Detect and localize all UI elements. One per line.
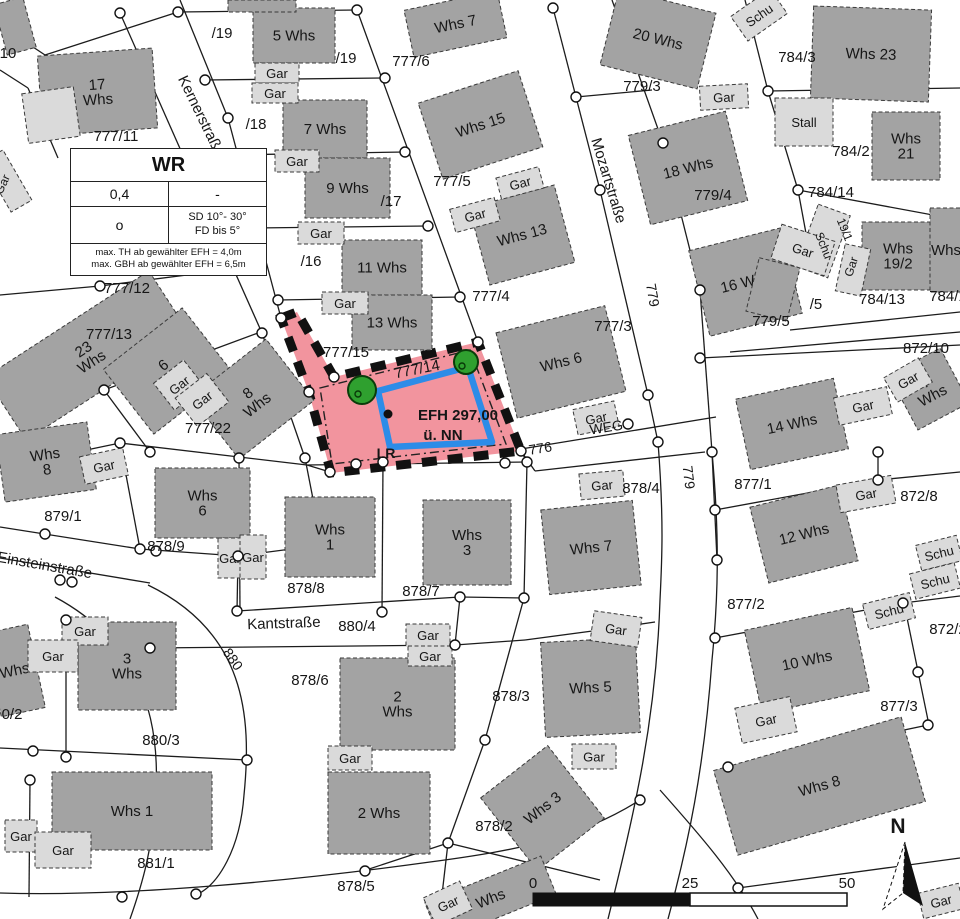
parcel-number-label: 878/5 bbox=[337, 878, 375, 895]
parcel-number-label: /16 bbox=[301, 253, 322, 270]
parcel-number-label: 777/11 bbox=[94, 128, 139, 145]
building: Whs3 bbox=[423, 500, 511, 585]
outbuilding: Gar bbox=[252, 83, 298, 103]
parcel-number-label: 779/5 bbox=[752, 313, 790, 330]
parcel-number-label: 777/4 bbox=[472, 288, 510, 305]
parcel-number-label: /18 bbox=[246, 116, 267, 133]
outbuilding: Gar bbox=[699, 84, 748, 110]
scale-bar-tick-label: 0 bbox=[529, 875, 537, 892]
survey-marker bbox=[695, 285, 705, 295]
parcel-number-label: 784/14 bbox=[808, 184, 854, 201]
survey-marker bbox=[873, 447, 883, 457]
parcel-number-label: 878/4 bbox=[622, 480, 660, 497]
outbuilding: Gar bbox=[328, 746, 372, 770]
outbuilding: Gar bbox=[275, 150, 319, 172]
legend-row-roof: o SD 10°- 30° FD bis 5° bbox=[71, 207, 266, 244]
building-footprint bbox=[228, 0, 296, 12]
scale-bar-right bbox=[690, 893, 847, 906]
street-name-label: 779 bbox=[680, 465, 699, 490]
survey-point-dot bbox=[384, 410, 393, 419]
survey-marker bbox=[40, 529, 50, 539]
legend-dash-value: - bbox=[169, 182, 266, 206]
building-label: 13 Whs bbox=[367, 315, 418, 332]
parcel-number-label: 0/2 bbox=[2, 706, 23, 723]
survey-marker bbox=[873, 475, 883, 485]
building-label: 19/2 bbox=[883, 256, 912, 273]
map-svg: 17Whs5 Whs7 Whs9 Whs11 Whs13 WhsWhs 15Wh… bbox=[0, 0, 960, 919]
building-label: Gar bbox=[419, 649, 441, 664]
survey-marker bbox=[223, 113, 233, 123]
building-label: Whs 1 bbox=[111, 803, 154, 820]
survey-marker bbox=[913, 667, 923, 677]
north-label: N bbox=[890, 815, 905, 838]
survey-marker bbox=[200, 75, 210, 85]
survey-marker bbox=[329, 372, 339, 382]
survey-marker bbox=[234, 453, 244, 463]
scale-bar-tick-label: 25 bbox=[682, 875, 699, 892]
legend-circle-value: o bbox=[71, 207, 169, 243]
survey-marker bbox=[61, 615, 71, 625]
legend-roof-line1: SD 10°- 30° bbox=[169, 211, 266, 225]
survey-marker bbox=[635, 795, 645, 805]
building-label: Whs bbox=[931, 242, 960, 259]
legend-roof-line2: FD bis 5° bbox=[169, 225, 266, 239]
survey-marker bbox=[643, 390, 653, 400]
parcel-number-label: 784/2 bbox=[832, 143, 870, 160]
outbuilding: Gar bbox=[406, 624, 450, 646]
parcel-number-label: 881/1 bbox=[137, 855, 175, 872]
legend-row-grz: 0,4 - bbox=[71, 182, 266, 207]
building-label: Gar bbox=[713, 89, 736, 105]
survey-marker bbox=[695, 353, 705, 363]
survey-marker bbox=[232, 606, 242, 616]
survey-marker bbox=[723, 762, 733, 772]
building: 2 Whs bbox=[328, 772, 430, 854]
survey-marker bbox=[733, 883, 743, 893]
parcel-number-label: /5 bbox=[810, 296, 823, 313]
legend-grz-value: 0,4 bbox=[71, 182, 169, 206]
parcel-number-label: 872/10 bbox=[903, 340, 949, 357]
scale-bar-left bbox=[533, 893, 690, 906]
building-label: Gar bbox=[310, 226, 332, 241]
parcel-number-label: 872/2 bbox=[929, 621, 960, 638]
parcel-number-label: 878/2 bbox=[475, 818, 513, 835]
building: 2Whs bbox=[340, 658, 455, 750]
survey-marker bbox=[99, 385, 109, 395]
outbuilding: Stall bbox=[775, 98, 833, 146]
building-label: 7 Whs bbox=[304, 121, 347, 138]
building-label: Gar bbox=[591, 477, 615, 494]
survey-marker bbox=[273, 295, 283, 305]
survey-marker bbox=[61, 752, 71, 762]
survey-marker bbox=[135, 544, 145, 554]
building-label: 1 bbox=[326, 537, 334, 554]
survey-marker bbox=[233, 551, 243, 561]
lr-label: LR bbox=[377, 445, 396, 461]
survey-marker bbox=[115, 438, 125, 448]
survey-marker bbox=[145, 643, 155, 653]
building-label: Gar bbox=[583, 750, 605, 765]
parcel-number-label: 878/8 bbox=[287, 580, 325, 597]
legend-box: WR 0,4 - o SD 10°- 30° FD bis 5° max. TH… bbox=[70, 148, 267, 276]
survey-marker bbox=[173, 7, 183, 17]
outbuilding: Gar bbox=[322, 292, 368, 314]
survey-marker bbox=[325, 467, 335, 477]
parcel-number-label: 777/12 bbox=[104, 280, 150, 297]
building-label: Gar bbox=[339, 751, 361, 766]
building-label: Gar bbox=[52, 843, 74, 858]
building: Whs 7 bbox=[541, 500, 641, 594]
legend-title: WR bbox=[71, 149, 266, 182]
building-label: 21 bbox=[898, 146, 915, 163]
legend-notes: max. TH ab gewählter EFH = 4,0m max. GBH… bbox=[71, 244, 266, 276]
survey-marker bbox=[423, 221, 433, 231]
survey-marker bbox=[115, 8, 125, 18]
survey-marker bbox=[480, 735, 490, 745]
survey-marker bbox=[707, 447, 717, 457]
building-label: Whs 23 bbox=[845, 45, 896, 64]
survey-marker bbox=[443, 838, 453, 848]
outbuilding: Gar bbox=[240, 535, 266, 579]
outbuilding: Gar bbox=[408, 646, 452, 666]
site-elevation-label: EFH 297,00 bbox=[418, 407, 498, 424]
parcel-number-label: /17 bbox=[381, 193, 402, 210]
parcel-number-label: /19 bbox=[212, 25, 233, 42]
outbuilding: Gar bbox=[255, 63, 299, 83]
survey-marker bbox=[191, 889, 201, 899]
building-label: 5 Whs bbox=[273, 28, 316, 45]
parcel-number-label: 779/4 bbox=[694, 187, 732, 204]
building-label: Whs bbox=[383, 704, 413, 721]
building-label: Whs bbox=[83, 90, 114, 109]
building: 7 Whs bbox=[283, 100, 367, 158]
building: Whs1 bbox=[285, 497, 375, 577]
outbuilding: Gar bbox=[28, 640, 78, 672]
parcel-number-label: 878/7 bbox=[402, 583, 440, 600]
tree-icon bbox=[348, 376, 376, 404]
parcel-number-label: 777/22 bbox=[185, 420, 231, 437]
building-label: 3 bbox=[463, 542, 471, 559]
building-label: Gar bbox=[264, 86, 286, 101]
parcel-number-label: /19 bbox=[336, 50, 357, 67]
building bbox=[228, 0, 296, 12]
building-footprint bbox=[22, 87, 80, 144]
building-label: Gar bbox=[604, 621, 628, 639]
legend-roof-cell: SD 10°- 30° FD bis 5° bbox=[169, 207, 266, 243]
survey-marker bbox=[377, 607, 387, 617]
parcel-number-label: 779/3 bbox=[623, 78, 661, 95]
outbuilding: Gar bbox=[298, 222, 344, 244]
building: 5 Whs bbox=[253, 8, 335, 63]
parcel-number-label: 880/4 bbox=[338, 618, 376, 635]
survey-marker bbox=[351, 459, 361, 469]
survey-marker bbox=[25, 775, 35, 785]
survey-marker bbox=[304, 387, 314, 397]
building: Whs19/2 bbox=[862, 222, 934, 290]
parcel-number-label: 10 bbox=[0, 45, 16, 62]
survey-marker bbox=[242, 755, 252, 765]
building-label: Gar bbox=[266, 66, 288, 81]
parcel-number-label: 880/3 bbox=[142, 732, 180, 749]
building-label: 2 Whs bbox=[358, 805, 401, 822]
parcel-number-label: 878/9 bbox=[147, 538, 185, 555]
site-elevation-unit-label: ü. NN bbox=[423, 427, 462, 444]
parcel-number-label: 777/15 bbox=[323, 344, 369, 361]
survey-marker bbox=[571, 92, 581, 102]
survey-marker bbox=[710, 633, 720, 643]
legend-note-2: max. GBH ab gewählter EFH = 6,5m bbox=[73, 259, 264, 272]
outbuilding: Gar bbox=[5, 820, 37, 852]
building: Whs6 bbox=[155, 468, 250, 538]
tree-icon bbox=[454, 350, 478, 374]
survey-marker bbox=[793, 185, 803, 195]
outbuilding: Gar bbox=[590, 611, 642, 647]
building: Whs bbox=[930, 208, 960, 292]
parcel-number-label: 784/13 bbox=[859, 291, 905, 308]
building-label: Stall bbox=[791, 115, 816, 130]
survey-marker bbox=[400, 147, 410, 157]
parcel-number-label: 877/1 bbox=[734, 476, 772, 493]
survey-marker bbox=[658, 138, 668, 148]
survey-marker bbox=[522, 457, 532, 467]
scale-bar-tick-label: 50 bbox=[839, 875, 856, 892]
parcel-number-label: 872/8 bbox=[900, 488, 938, 505]
survey-marker bbox=[923, 720, 933, 730]
survey-marker bbox=[117, 892, 127, 902]
survey-marker bbox=[28, 746, 38, 756]
parcel-number-label: 777/13 bbox=[86, 326, 132, 343]
building: Whs21 bbox=[872, 112, 940, 180]
outbuilding: Gar bbox=[35, 832, 91, 868]
parcel-number-label: 877/3 bbox=[880, 698, 918, 715]
parcel-number-label: 878/6 bbox=[291, 672, 329, 689]
survey-marker bbox=[360, 866, 370, 876]
survey-marker bbox=[548, 3, 558, 13]
building: 11 Whs bbox=[342, 240, 422, 295]
survey-marker bbox=[145, 447, 155, 457]
building-label: Whs bbox=[112, 666, 142, 683]
outbuilding: Gar bbox=[572, 744, 616, 769]
building-label: 9 Whs bbox=[326, 180, 369, 197]
parcel-number-label: 777/6 bbox=[392, 53, 430, 70]
survey-marker bbox=[500, 458, 510, 468]
parcel-number-label: 777/3 bbox=[594, 318, 632, 335]
building-label: Whs 5 bbox=[569, 678, 612, 697]
outbuilding bbox=[22, 87, 80, 144]
survey-marker bbox=[653, 437, 663, 447]
building-label: Gar bbox=[242, 550, 264, 565]
building-label: Gar bbox=[417, 628, 439, 643]
parcel-number-label: 784/1 bbox=[929, 288, 960, 305]
survey-marker bbox=[710, 505, 720, 515]
building: Whs 23 bbox=[810, 6, 931, 102]
survey-marker bbox=[450, 640, 460, 650]
survey-marker bbox=[473, 337, 483, 347]
survey-marker bbox=[352, 5, 362, 15]
survey-marker bbox=[380, 73, 390, 83]
street-name-label: Kantstraße bbox=[247, 614, 321, 634]
parcel-number-label: 784/3 bbox=[778, 49, 816, 66]
survey-marker bbox=[276, 313, 286, 323]
survey-marker bbox=[898, 598, 908, 608]
building-label: Gar bbox=[286, 154, 308, 169]
building-label: 11 Whs bbox=[357, 260, 407, 277]
survey-marker bbox=[516, 446, 526, 456]
parcel-number-label: 877/2 bbox=[727, 596, 765, 613]
cadastral-map-page: 17Whs5 Whs7 Whs9 Whs11 Whs13 WhsWhs 15Wh… bbox=[0, 0, 960, 919]
building-label: Gar bbox=[334, 296, 356, 311]
building: Whs 5 bbox=[541, 638, 641, 738]
survey-marker bbox=[455, 292, 465, 302]
parcel-number-label: 879/1 bbox=[44, 508, 82, 525]
survey-marker bbox=[455, 592, 465, 602]
building-label: Gar bbox=[42, 649, 64, 664]
outbuilding: Gar bbox=[579, 470, 625, 500]
survey-marker bbox=[519, 593, 529, 603]
survey-marker bbox=[763, 86, 773, 96]
parcel-number-label: 777/5 bbox=[433, 173, 471, 190]
building-label: 6 bbox=[198, 503, 206, 520]
survey-marker bbox=[257, 328, 267, 338]
parcel-number-label: 878/3 bbox=[492, 688, 530, 705]
survey-marker bbox=[623, 419, 633, 429]
legend-note-1: max. TH ab gewählter EFH = 4,0m bbox=[73, 247, 264, 260]
building-label: Gar bbox=[74, 624, 96, 639]
building-label: Gar bbox=[10, 829, 32, 844]
survey-marker bbox=[712, 555, 722, 565]
survey-marker bbox=[300, 453, 310, 463]
